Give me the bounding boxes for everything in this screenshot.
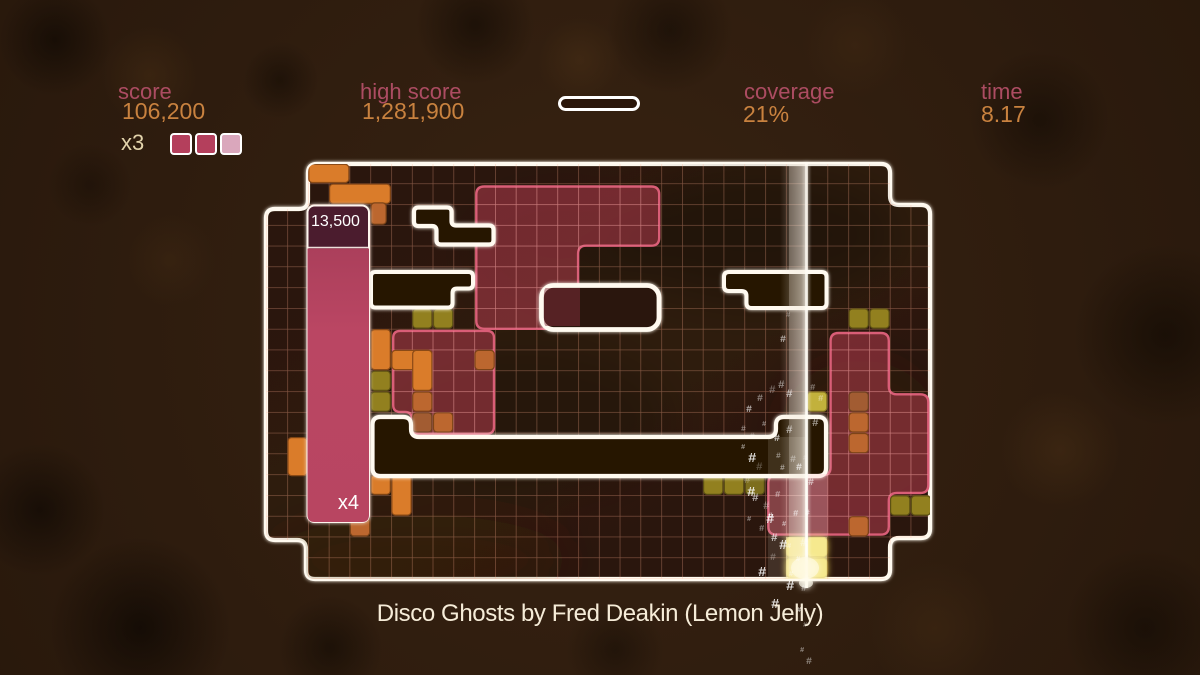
svg-text:#: # (778, 380, 785, 392)
svg-text:#: # (758, 565, 766, 581)
svg-text:#: # (780, 335, 786, 346)
svg-text:13,500: 13,500 (311, 213, 360, 230)
svg-text:#: # (776, 452, 781, 461)
svg-text:#: # (786, 425, 793, 437)
svg-text:#: # (774, 434, 780, 445)
svg-text:#: # (796, 463, 802, 474)
svg-text:#: # (812, 418, 819, 430)
svg-text:#: # (775, 490, 781, 500)
svg-text:#: # (810, 383, 816, 393)
svg-text:#: # (757, 394, 763, 405)
svg-text:#: # (806, 657, 812, 668)
svg-text:#: # (762, 421, 766, 429)
svg-text:#: # (803, 455, 807, 463)
svg-text:#: # (787, 543, 791, 551)
svg-text:#: # (771, 533, 778, 545)
svg-text:#: # (789, 571, 793, 579)
svg-text:#: # (796, 556, 800, 564)
svg-text:#: # (770, 553, 776, 564)
svg-text:#: # (800, 538, 807, 550)
svg-text:#: # (818, 394, 824, 404)
svg-text:#: # (768, 512, 773, 521)
svg-text:#: # (786, 389, 793, 401)
svg-text:#: # (793, 509, 799, 519)
svg-text:#: # (767, 474, 771, 482)
svg-text:#: # (759, 524, 765, 534)
svg-text:#: # (747, 516, 751, 524)
svg-text:#: # (780, 464, 785, 473)
svg-text:#: # (741, 444, 745, 452)
svg-text:#: # (746, 405, 752, 416)
svg-text:#: # (786, 579, 794, 595)
svg-text:#: # (756, 462, 763, 474)
svg-text:#: # (769, 385, 776, 397)
svg-text:#: # (741, 425, 746, 434)
svg-text:#: # (786, 312, 790, 320)
svg-text:x4: x4 (338, 492, 359, 514)
svg-text:#: # (801, 584, 807, 594)
svg-text:#: # (808, 478, 814, 489)
svg-text:#: # (752, 493, 759, 505)
svg-text:#: # (750, 432, 755, 441)
svg-text:#: # (805, 509, 810, 518)
svg-text:#: # (744, 475, 751, 487)
svg-text:#: # (800, 647, 804, 655)
svg-text:#: # (782, 521, 786, 529)
